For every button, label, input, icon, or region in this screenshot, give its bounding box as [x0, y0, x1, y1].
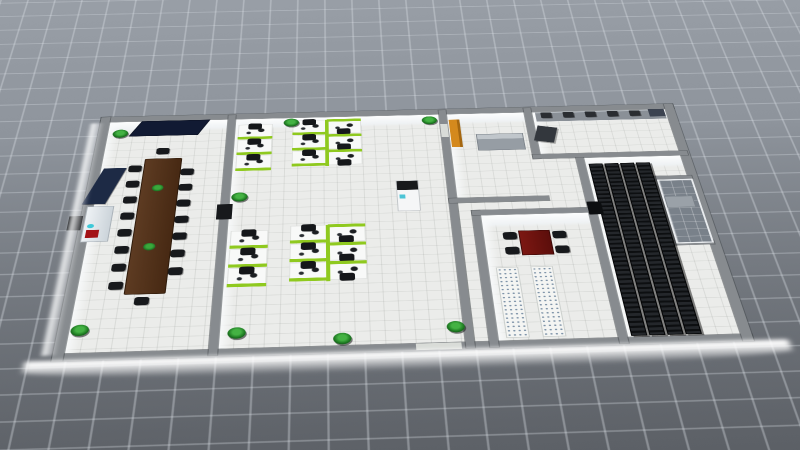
conference-chair[interactable]	[117, 229, 132, 237]
workstation-desk[interactable]	[290, 225, 328, 243]
workstation-desk[interactable]	[327, 134, 362, 149]
kitchen-appliance[interactable]	[540, 112, 552, 118]
meeting-table[interactable]	[518, 230, 554, 255]
conference-chair[interactable]	[111, 264, 127, 272]
kitchen-appliance[interactable]	[562, 112, 574, 118]
conference-chair[interactable]	[133, 297, 149, 306]
conference-chair[interactable]	[170, 249, 185, 257]
kitchen-appliance[interactable]	[607, 111, 619, 117]
workstation-desk[interactable]	[238, 124, 273, 139]
dark-cabinet[interactable]	[648, 109, 666, 117]
conference-chair[interactable]	[178, 184, 192, 191]
meeting-chair[interactable]	[505, 247, 520, 255]
workstation-desk[interactable]	[236, 139, 272, 154]
conference-chair[interactable]	[174, 216, 189, 223]
alcove-step[interactable]	[664, 196, 696, 208]
conference-chair[interactable]	[108, 282, 124, 290]
workstation-desk[interactable]	[228, 248, 268, 267]
electrical-box[interactable]	[586, 201, 604, 214]
workstation-desk[interactable]	[292, 150, 328, 166]
workstation-desk[interactable]	[289, 243, 328, 262]
workstation-desk[interactable]	[227, 267, 267, 286]
workstation-desk[interactable]	[289, 262, 328, 281]
workstation-desk[interactable]	[328, 224, 366, 242]
conference-chair[interactable]	[123, 196, 138, 203]
floorplan-plane	[0, 83, 800, 450]
gray-table[interactable]	[476, 133, 526, 151]
printer[interactable]	[534, 126, 557, 143]
conference-chair[interactable]	[180, 168, 194, 175]
conference-chair[interactable]	[120, 212, 135, 219]
workstation-desk[interactable]	[235, 155, 271, 171]
kitchen-appliance[interactable]	[584, 111, 596, 117]
conference-chair[interactable]	[125, 181, 139, 188]
meeting-chair[interactable]	[552, 231, 567, 239]
conference-chair[interactable]	[168, 267, 183, 275]
conference-chair[interactable]	[156, 148, 170, 155]
3d-floorplan-viewport[interactable]	[0, 0, 800, 450]
conference-chair[interactable]	[176, 199, 190, 206]
door-storage[interactable]	[440, 124, 449, 137]
door-conference-office[interactable]	[216, 204, 233, 220]
conference-chair[interactable]	[128, 165, 142, 172]
workstation-desk[interactable]	[292, 135, 327, 150]
workstation-desk[interactable]	[229, 230, 268, 248]
kitchen-appliance[interactable]	[629, 110, 641, 116]
vending-machine[interactable]	[396, 180, 421, 211]
office-building	[54, 105, 752, 360]
divider-panel[interactable]	[325, 120, 329, 166]
workstation-desk[interactable]	[327, 149, 363, 165]
workstation-desk[interactable]	[328, 242, 367, 261]
coffee-machine[interactable]	[85, 230, 100, 238]
workstation-desk[interactable]	[328, 261, 367, 280]
divider-panel[interactable]	[326, 225, 331, 281]
conference-chair[interactable]	[114, 246, 129, 254]
presentation-screen[interactable]	[128, 120, 210, 137]
conference-chair[interactable]	[172, 232, 187, 240]
meeting-chair[interactable]	[555, 245, 571, 253]
meeting-chair[interactable]	[502, 232, 517, 240]
workstation-desk[interactable]	[327, 119, 362, 134]
